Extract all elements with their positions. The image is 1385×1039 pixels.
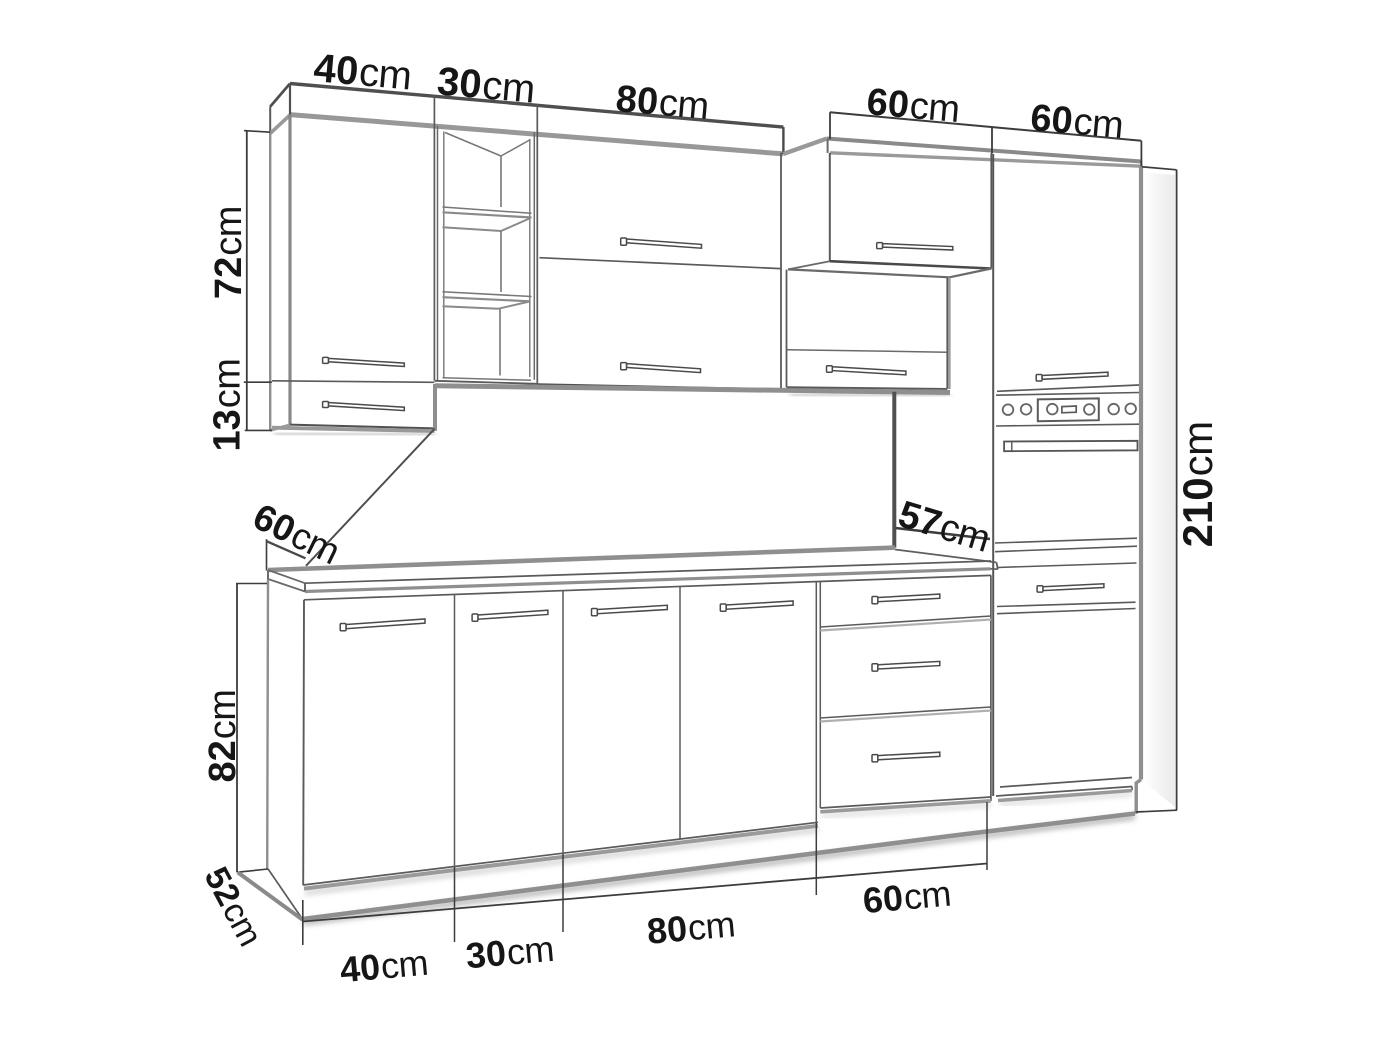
svg-text:72cm: 72cm [208,206,250,299]
svg-text:80cm: 80cm [614,78,710,128]
svg-text:60cm: 60cm [861,873,952,922]
svg-text:40cm: 40cm [338,942,429,991]
svg-text:82cm: 82cm [202,690,244,783]
svg-text:40cm: 40cm [312,46,413,98]
svg-text:30cm: 30cm [464,928,555,977]
svg-text:30cm: 30cm [435,59,536,111]
svg-text:13cm: 13cm [207,359,249,452]
svg-text:60cm: 60cm [865,81,961,131]
svg-text:60cm: 60cm [1029,97,1125,147]
svg-text:80cm: 80cm [645,903,736,952]
svg-text:210cm: 210cm [1174,421,1221,547]
